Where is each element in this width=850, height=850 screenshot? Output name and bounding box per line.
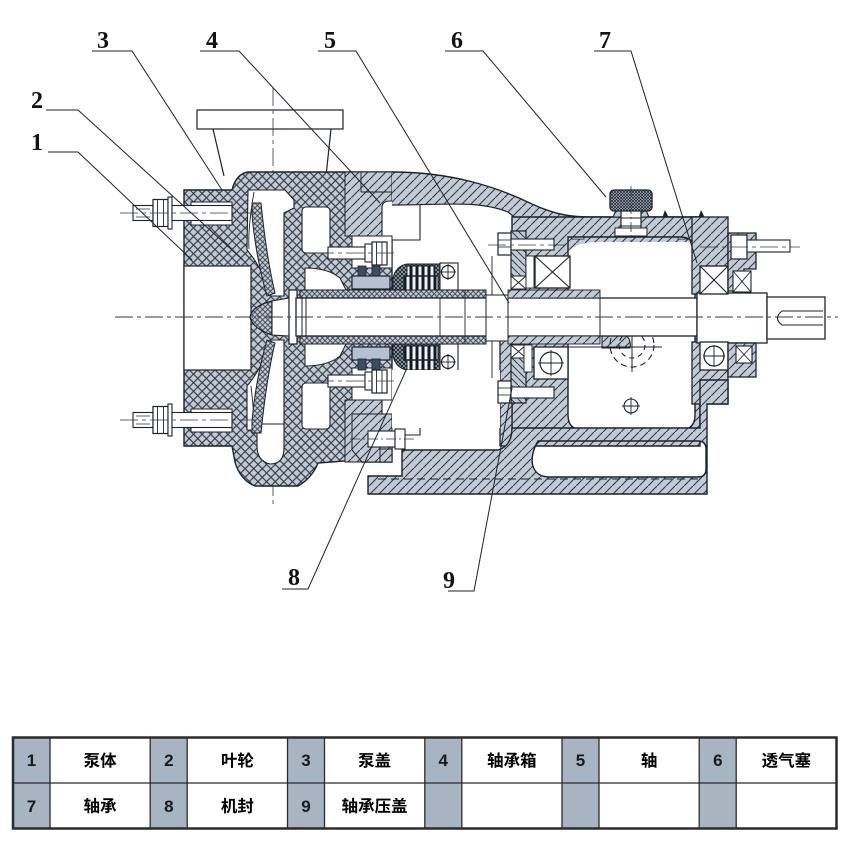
svg-text:1: 1	[31, 130, 43, 156]
svg-text:6: 6	[713, 751, 722, 770]
svg-text:4: 4	[206, 28, 218, 54]
svg-text:3: 3	[97, 28, 109, 54]
svg-text:9: 9	[443, 568, 455, 594]
svg-text:4: 4	[438, 751, 448, 770]
svg-text:7: 7	[599, 28, 611, 54]
svg-text:3: 3	[301, 751, 310, 770]
svg-text:7: 7	[27, 797, 36, 816]
svg-text:2: 2	[31, 88, 43, 114]
svg-text:2: 2	[164, 751, 173, 770]
svg-text:5: 5	[324, 28, 336, 54]
svg-text:8: 8	[288, 565, 300, 591]
svg-text:9: 9	[301, 797, 310, 816]
svg-text:8: 8	[164, 797, 173, 816]
svg-text:1: 1	[27, 751, 36, 770]
svg-text:5: 5	[576, 751, 585, 770]
svg-text:6: 6	[451, 28, 463, 54]
